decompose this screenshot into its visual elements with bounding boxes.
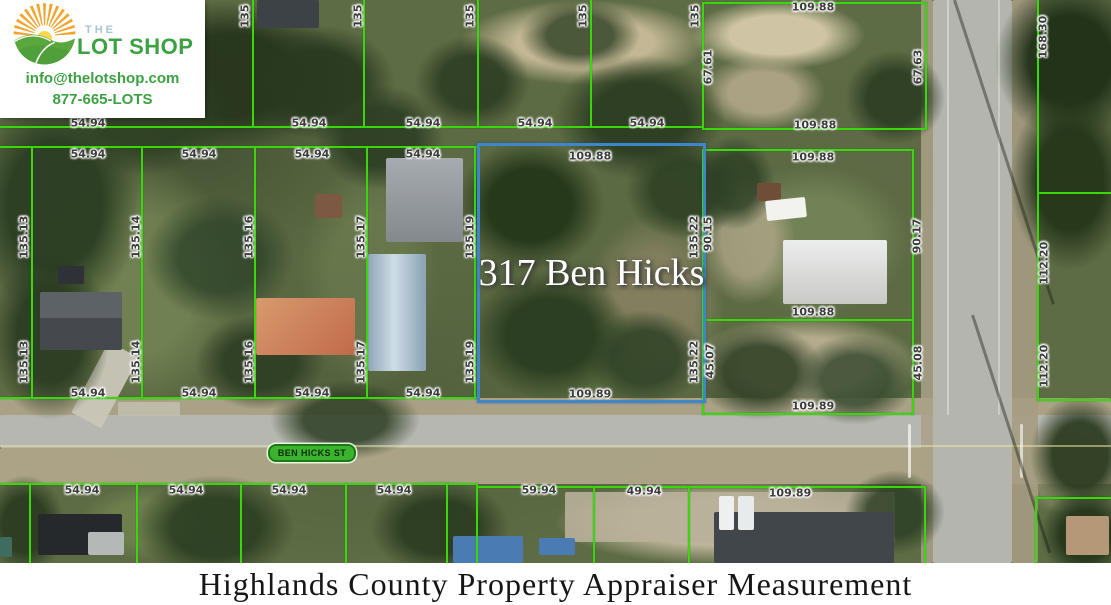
brand-phone: 877-665-LOTS bbox=[0, 91, 205, 108]
measurement-label: 135.16 bbox=[243, 341, 256, 383]
brand-email: info@thelotshop.com bbox=[0, 70, 205, 87]
measurement-label: 109.88 bbox=[792, 1, 834, 14]
building-roof bbox=[88, 532, 124, 555]
measurement-label: 54.94 bbox=[169, 484, 204, 497]
measurement-label: 109.89 bbox=[792, 400, 834, 413]
measurement-label: 109.88 bbox=[569, 150, 611, 163]
car bbox=[58, 266, 84, 284]
measurement-label: 67.63 bbox=[912, 50, 925, 85]
parcel-boundary-line bbox=[252, 0, 254, 128]
road-edge-line bbox=[947, 0, 949, 415]
measurement-label: 54.94 bbox=[630, 117, 665, 130]
building-roof bbox=[783, 240, 887, 304]
building-roof bbox=[539, 538, 575, 555]
measurement-label: 54.94 bbox=[406, 117, 441, 130]
parcel-boundary-line bbox=[688, 486, 690, 563]
measurement-label: 135.19 bbox=[464, 341, 477, 383]
street-name-label: BEN HICKS ST bbox=[268, 444, 356, 462]
car bbox=[765, 197, 807, 221]
parcel-boundary-line bbox=[1037, 0, 1039, 401]
measurement-label: 90.17 bbox=[911, 219, 924, 254]
measurement-label: 112.20 bbox=[1038, 242, 1051, 284]
building-roof bbox=[453, 536, 523, 563]
road-centerline bbox=[0, 445, 1111, 447]
parcel-boundary-line bbox=[476, 483, 478, 563]
parcel-boundary-line bbox=[446, 483, 448, 563]
measurement-label: 54.94 bbox=[295, 148, 330, 161]
parcel-address-label: 317 Ben Hicks bbox=[479, 251, 705, 295]
building-roof bbox=[1066, 516, 1109, 555]
measurement-label: 54.94 bbox=[71, 148, 106, 161]
parcel-boundary-line bbox=[924, 486, 926, 563]
tree-canopy bbox=[845, 50, 945, 145]
measurement-label: 54.94 bbox=[182, 387, 217, 400]
measurement-label: 168.30 bbox=[1037, 16, 1050, 58]
measurement-label: 45.08 bbox=[912, 346, 925, 381]
measurement-label: 54.94 bbox=[71, 387, 106, 400]
building-roof bbox=[0, 537, 12, 557]
parcel-boundary-line bbox=[590, 0, 592, 128]
measurement-label: 135.16 bbox=[243, 216, 256, 258]
measurement-label: 135.19 bbox=[464, 216, 477, 258]
measurement-label: 54.94 bbox=[272, 484, 307, 497]
measurement-label: 112.20 bbox=[1038, 345, 1051, 387]
property-map-flyer: 54.9454.9454.9454.9454.94135135135135135… bbox=[0, 0, 1111, 605]
parcel-boundary-line bbox=[240, 483, 242, 563]
parcel-boundary-line bbox=[702, 413, 914, 415]
building-roof bbox=[257, 0, 319, 28]
measurement-label: 45.07 bbox=[704, 344, 717, 379]
measurement-label: 109.89 bbox=[769, 487, 811, 500]
measurement-label: 109.89 bbox=[569, 388, 611, 401]
car bbox=[719, 496, 734, 530]
measurement-label: 54.94 bbox=[292, 117, 327, 130]
parcel-boundary-line bbox=[1037, 192, 1111, 194]
measurement-label: 109.88 bbox=[792, 306, 834, 319]
measurement-label: 135.14 bbox=[130, 216, 143, 258]
parcel-boundary-line bbox=[136, 483, 138, 563]
brand-name: LOT SHOP bbox=[77, 34, 193, 60]
parcel-boundary-line bbox=[925, 2, 927, 130]
measurement-label: 109.88 bbox=[794, 119, 836, 132]
measurement-label: 135.17 bbox=[355, 341, 368, 383]
aerial-map: 54.9454.9454.9454.9454.94135135135135135… bbox=[0, 0, 1111, 563]
parcel-boundary-line bbox=[31, 146, 33, 399]
measurement-label: 54.94 bbox=[182, 148, 217, 161]
measurement-label: 135.14 bbox=[130, 341, 143, 383]
parcel-boundary-line bbox=[593, 486, 595, 563]
road-edge-line bbox=[998, 0, 1000, 415]
measurement-label: 54.94 bbox=[406, 148, 441, 161]
measurement-label: 135 bbox=[239, 5, 252, 28]
measurement-label: 135.22 bbox=[688, 216, 701, 258]
measurement-label: 135 bbox=[464, 5, 477, 28]
measurement-label: 90.15 bbox=[702, 217, 715, 252]
measurement-label: 49.94 bbox=[627, 485, 662, 498]
logo-card: THE LOT SHOP info@thelotshop.com 877-665… bbox=[0, 0, 205, 118]
parcel-boundary-line bbox=[29, 483, 31, 563]
driveway bbox=[118, 402, 180, 416]
parcel-boundary-line bbox=[1037, 399, 1111, 401]
parcel-boundary-line bbox=[477, 0, 479, 128]
parcel-boundary-line bbox=[345, 483, 347, 563]
measurement-label: 54.94 bbox=[295, 387, 330, 400]
measurement-label: 135 bbox=[689, 5, 702, 28]
measurement-label: 54.94 bbox=[377, 484, 412, 497]
measurement-label: 54.94 bbox=[71, 117, 106, 130]
building-roof bbox=[386, 158, 463, 242]
measurement-label: 54.94 bbox=[65, 484, 100, 497]
measurement-label: 54.94 bbox=[518, 117, 553, 130]
sun-logo-icon bbox=[13, 2, 76, 65]
measurement-label: 109.88 bbox=[792, 151, 834, 164]
measurement-label: 135.22 bbox=[688, 341, 701, 383]
car bbox=[738, 496, 754, 530]
building-roof bbox=[757, 183, 781, 201]
parcel-boundary-line bbox=[702, 319, 914, 321]
measurement-label: 135.13 bbox=[18, 216, 31, 258]
building-roof bbox=[315, 194, 342, 218]
measurement-label: 135.17 bbox=[355, 216, 368, 258]
measurement-label: 59.94 bbox=[522, 484, 557, 497]
measurement-label: 135.13 bbox=[18, 341, 31, 383]
building-roof bbox=[256, 298, 355, 355]
measurement-label: 54.94 bbox=[406, 387, 441, 400]
parcel-boundary-line bbox=[1035, 497, 1037, 563]
crosswalk-line bbox=[908, 424, 911, 478]
measurement-label: 135 bbox=[577, 5, 590, 28]
building-roof bbox=[40, 292, 122, 350]
parcel-boundary-line bbox=[1035, 497, 1111, 499]
caption-title: Highlands County Property Appraiser Meas… bbox=[0, 563, 1111, 605]
measurement-label: 67.61 bbox=[702, 50, 715, 85]
highlighted-parcel: 317 Ben Hicks bbox=[477, 143, 706, 403]
measurement-label: 135 bbox=[352, 5, 365, 28]
building-roof bbox=[368, 254, 426, 371]
